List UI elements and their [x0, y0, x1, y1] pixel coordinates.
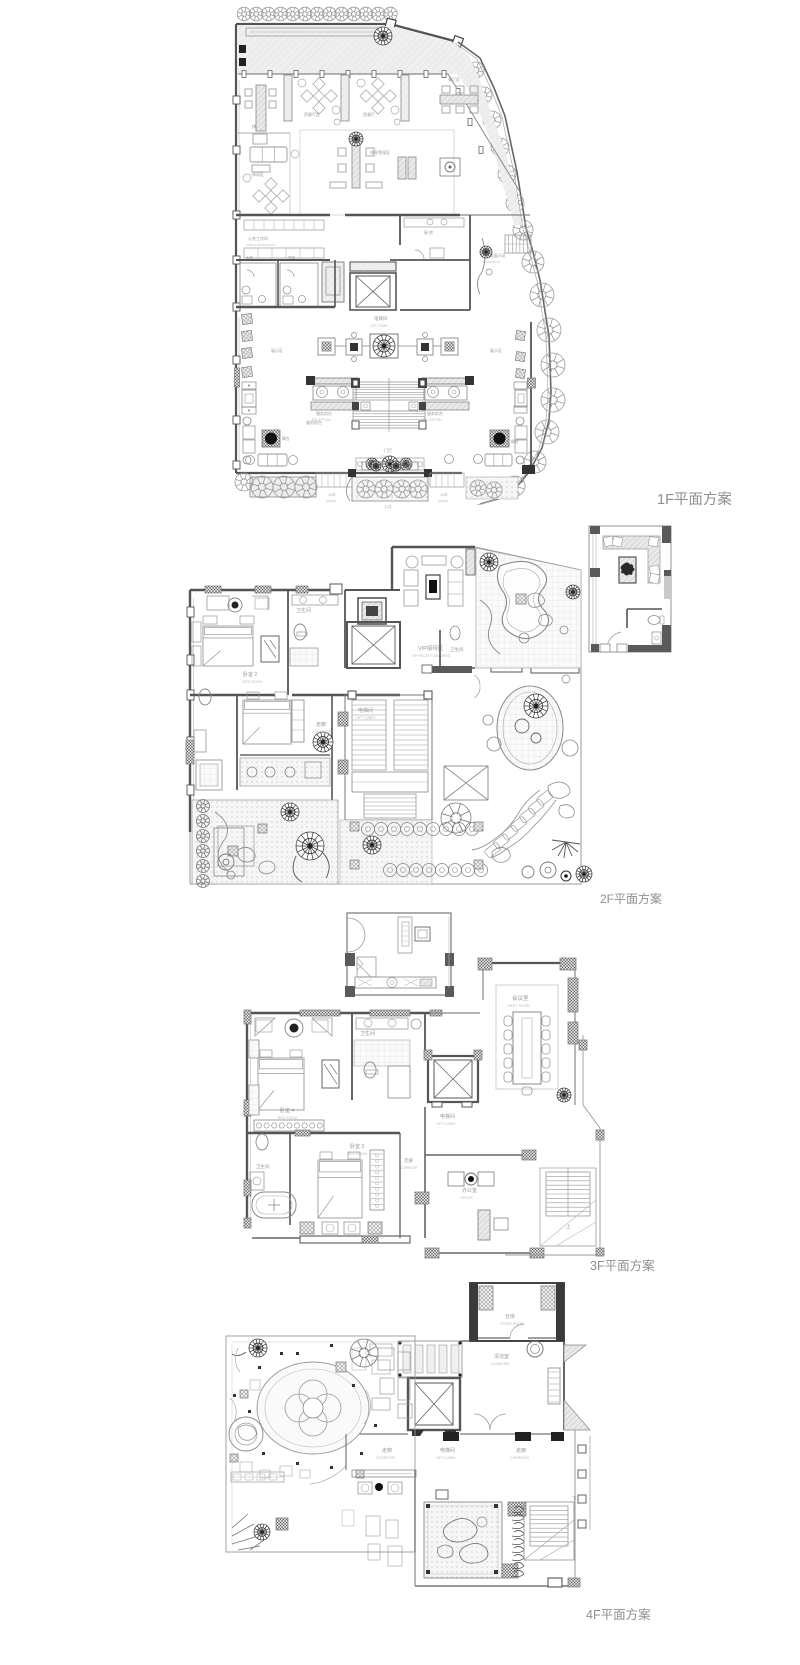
svg-text:仓库: 仓库 [505, 1313, 515, 1320]
svg-text:入口: 入口 [440, 492, 448, 497]
svg-text:展示区: 展示区 [490, 347, 502, 353]
svg-text:STORE ROOM: STORE ROOM [500, 1322, 524, 1326]
svg-text:服务前台: 服务前台 [306, 419, 322, 425]
svg-text:舞台: 舞台 [282, 436, 290, 441]
svg-text:CORRIDOR: CORRIDOR [376, 1456, 396, 1460]
svg-text:卫生间: 卫生间 [360, 1030, 375, 1037]
svg-text:LIFT LOBBY: LIFT LOBBY [436, 1456, 456, 1460]
svg-text:LIFT LOBBY: LIFT LOBBY [436, 1122, 456, 1126]
svg-text:CLEAN RM: CLEAN RM [491, 1362, 509, 1366]
svg-text:PUBLIC WORK ROOM: PUBLIC WORK ROOM [246, 243, 276, 247]
svg-text:卫生间: 卫生间 [450, 646, 464, 653]
svg-text:厨 房: 厨 房 [424, 229, 433, 235]
svg-text:走廊: 走廊 [382, 1447, 392, 1454]
svg-text:办公室: 办公室 [462, 1187, 477, 1194]
svg-text:卧室 2: 卧室 2 [243, 671, 257, 678]
svg-text:西餐厅区: 西餐厅区 [304, 111, 320, 117]
svg-text:走廊: 走廊 [516, 1447, 526, 1454]
svg-text:BED ROOM: BED ROOM [278, 1116, 297, 1120]
svg-text:LIFT LOBBY: LIFT LOBBY [356, 716, 376, 720]
svg-text:3F平面方案: 3F平面方案 [590, 1258, 655, 1273]
svg-text:电梯间: 电梯间 [374, 315, 388, 322]
svg-text:电梯间: 电梯间 [440, 1447, 455, 1454]
svg-text:卧室 4: 卧室 4 [280, 1107, 294, 1114]
svg-text:OFFICE: OFFICE [460, 1196, 473, 1200]
svg-text:展示区: 展示区 [271, 347, 283, 353]
svg-text:休息等候区: 休息等候区 [370, 149, 390, 155]
svg-text:MEET ROOM: MEET ROOM [508, 1004, 530, 1008]
svg-text:2F平面方案: 2F平面方案 [600, 891, 662, 906]
svg-text:会议室: 会议室 [512, 994, 529, 1002]
svg-text:VIP RECEPTION DRIVE: VIP RECEPTION DRIVE [412, 654, 451, 658]
svg-text:卧室 3: 卧室 3 [350, 1143, 364, 1150]
svg-text:电梯间: 电梯间 [440, 1113, 455, 1120]
svg-text:入口: 入口 [384, 504, 392, 509]
svg-text:CORRIDOR: CORRIDOR [510, 1456, 530, 1460]
svg-text:BED ROOM: BED ROOM [243, 680, 262, 684]
svg-text:走廊: 走廊 [404, 1157, 413, 1164]
svg-text:4F平面方案: 4F平面方案 [586, 1607, 651, 1622]
svg-text:1F平面方案: 1F平面方案 [657, 490, 732, 508]
svg-text:门厅: 门厅 [384, 447, 392, 454]
svg-text:CORRIDOR: CORRIDOR [312, 730, 332, 734]
svg-text:入口: 入口 [328, 492, 336, 497]
svg-text:服务前台: 服务前台 [316, 410, 332, 416]
svg-text:CORRIDOR: CORRIDOR [400, 1166, 418, 1170]
svg-text:电梯间: 电梯间 [358, 707, 373, 714]
svg-text:走廊: 走廊 [316, 721, 326, 728]
svg-text:公共工作间: 公共工作间 [248, 235, 268, 241]
svg-text:卫生间: 卫生间 [296, 607, 311, 614]
svg-text:清洁室: 清洁室 [494, 1353, 509, 1360]
svg-text:西餐厅: 西餐厅 [363, 111, 375, 117]
svg-text:服务前台: 服务前台 [427, 410, 443, 416]
svg-text:LIFT LOBBY: LIFT LOBBY [370, 324, 389, 328]
svg-text:卫生间: 卫生间 [256, 1163, 270, 1170]
svg-text:EXHIBITION: EXHIBITION [483, 260, 500, 264]
svg-text:ENTER: ENTER [326, 499, 337, 503]
svg-text:ENTER: ENTER [438, 499, 449, 503]
svg-text:BED ROOM: BED ROOM [348, 1152, 367, 1156]
